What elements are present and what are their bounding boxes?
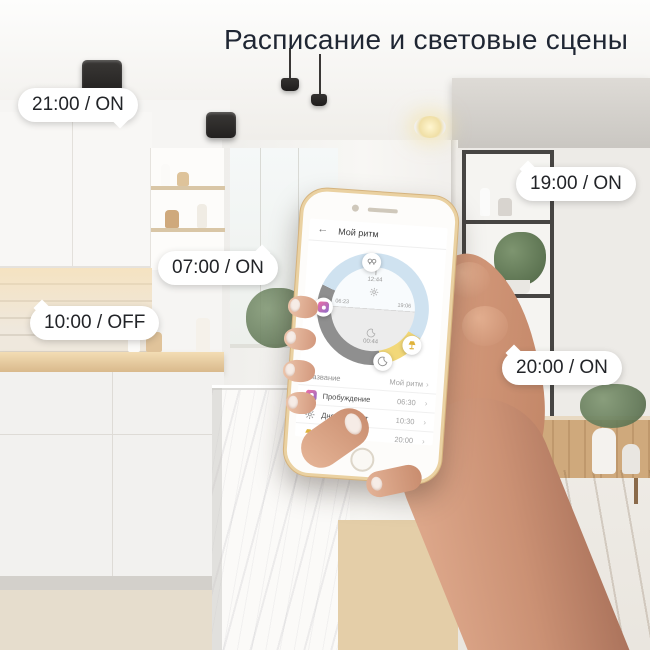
ceiling-spotlight	[206, 112, 236, 138]
pendant-lamp	[311, 94, 327, 106]
pendant-lamp	[281, 78, 299, 91]
day-rhythm-dial: 12:44 06:23 19:06	[300, 240, 446, 375]
ceiling-soffit	[452, 78, 650, 150]
moon-clock-icon	[377, 356, 389, 368]
phone-speaker	[368, 207, 398, 213]
spacer	[341, 378, 390, 381]
countertop	[0, 352, 224, 372]
vase	[177, 172, 189, 186]
scene-time: 10:30	[395, 415, 414, 425]
vase	[480, 188, 490, 216]
sun-icon	[369, 287, 380, 298]
moon-icon	[366, 328, 377, 339]
callout-label: 07:00 / ON	[172, 257, 264, 279]
callout-label: 19:00 / ON	[530, 173, 622, 195]
app-title: Мой ритм	[338, 226, 379, 239]
chevron-right-icon: ›	[423, 417, 426, 426]
scene-time: 20:00	[394, 434, 413, 444]
lamp-icon	[406, 340, 418, 352]
sunrise-time: 06:23	[335, 298, 349, 305]
callout-label: 20:00 / ON	[516, 357, 608, 379]
front-camera	[352, 204, 359, 211]
page-title: Расписание и световые сцены	[224, 24, 644, 56]
fingertip	[286, 391, 317, 414]
hand-knuckle	[462, 306, 508, 346]
vase	[498, 198, 512, 216]
callout-2100: 21:00 / ON	[18, 88, 138, 122]
chevron-right-icon: ›	[422, 436, 425, 445]
base-cabinet	[0, 372, 224, 578]
sunset-time: 19:06	[397, 303, 411, 310]
home-button[interactable]	[350, 447, 376, 473]
recessed-light-glow	[414, 116, 446, 138]
floor-vase	[622, 444, 640, 474]
promo-scene: Расписание и световые сцены 21:00 / ON 1…	[0, 0, 650, 650]
cabinet-kickboard	[0, 576, 224, 590]
callout-0700: 07:00 / ON	[158, 251, 278, 285]
upper-cabinet	[0, 112, 152, 270]
callout-label: 21:00 / ON	[32, 94, 124, 116]
back-icon[interactable]: ←	[317, 224, 329, 236]
dial-ring[interactable]: 12:44 06:23 19:06	[313, 249, 433, 369]
callout-1000: 10:00 / OFF	[30, 306, 159, 340]
vase	[197, 204, 207, 228]
callout-1900: 19:00 / ON	[516, 167, 636, 201]
callout-2000: 20:00 / ON	[502, 351, 622, 385]
evening-scene-button[interactable]	[402, 335, 422, 355]
floor-vase	[592, 428, 616, 474]
counter-canister	[196, 318, 210, 352]
night-scene-button[interactable]	[373, 351, 393, 371]
scene-label: Пробуждение	[322, 391, 370, 403]
shelf-board	[151, 228, 225, 232]
solar-noon-time: 12:44	[333, 274, 417, 286]
spacer	[374, 418, 390, 419]
chevron-right-icon: ›	[424, 398, 427, 407]
phone-screen: ← Мой ритм 12:44	[295, 218, 448, 445]
spacer	[376, 400, 391, 401]
bulbs-icon	[366, 256, 378, 268]
name-value: Мой ритм	[389, 377, 423, 388]
vase	[161, 164, 170, 186]
floor-left	[0, 590, 224, 650]
wakeup-scene-icon	[318, 301, 330, 313]
chevron-right-icon: ›	[426, 379, 429, 388]
shelf-board	[151, 186, 225, 190]
shelf-board	[466, 220, 550, 224]
wood-box	[165, 210, 179, 228]
scene-time: 06:30	[397, 396, 416, 406]
callout-label: 10:00 / OFF	[44, 312, 145, 334]
pendant-cord	[319, 54, 321, 96]
